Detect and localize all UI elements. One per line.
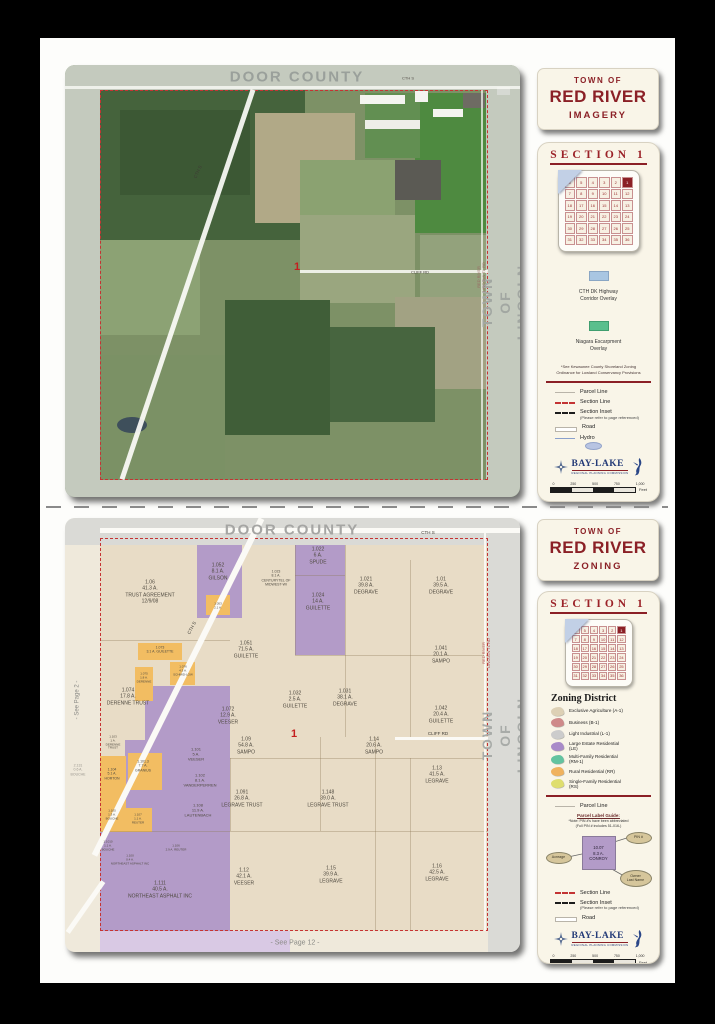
section-cell: 25 [622, 223, 633, 234]
section-cell: 21 [590, 653, 598, 661]
map-label: 1.103 1 A. DERENNE TRUST [106, 736, 121, 751]
line-swatch [555, 806, 575, 807]
logo-name: BAY-LAKE [572, 459, 629, 469]
section-cell: 15 [599, 644, 607, 652]
section-cell: 34 [599, 672, 607, 680]
section-cell: 28 [590, 663, 598, 671]
section-cell: 29 [576, 223, 587, 234]
section-cell: 32 [576, 235, 587, 246]
imagery-labels: DOOR COUNTYCTH STOWN OF LINCOLNRED RIVER… [65, 65, 520, 497]
section-cell: 31 [565, 235, 576, 246]
map-label: 1.14 20.6 A. SAMPO [365, 737, 383, 756]
section-cell: 27 [599, 663, 607, 671]
section-cell: 33 [590, 672, 598, 680]
map-label: DOOR COUNTY [230, 69, 365, 88]
compass-icon [554, 932, 568, 946]
section-cell: 2 [608, 626, 616, 634]
overlay-swatch [589, 321, 609, 331]
title-type: ZONING [538, 561, 658, 572]
section-cell: 13 [617, 644, 625, 652]
section-cell: 33 [588, 235, 599, 246]
section-cell: 22 [599, 212, 610, 223]
line-swatch [555, 902, 575, 904]
section-cell: 31 [572, 672, 580, 680]
section-cell: 3 [599, 626, 607, 634]
section-cell: 19 [572, 653, 580, 661]
line-label: Parcel Line [580, 389, 608, 395]
scale-unit: Feet [639, 487, 647, 492]
map-label: TOWN OF LINCOLN [479, 697, 520, 773]
section-cell: 19 [565, 212, 576, 223]
section-cell: 18 [572, 644, 580, 652]
baylake-logo: BAY-LAKE REGIONAL PLANNING COMMISSION [543, 930, 654, 948]
section-cell: 26 [608, 663, 616, 671]
scale-bar: 02505007501,000 Feet [543, 954, 654, 964]
section-inset-map: 6543217891011121817161514131920212223243… [558, 170, 640, 252]
map-label: 1.021 39.8 A. DEGRAVE [354, 577, 378, 596]
guide-parcel-box: 10.07 8.3 A. CONROY [582, 836, 616, 870]
overlay-label: CTH DK Highway Corridor Overlay [543, 289, 654, 302]
guide-title: Parcel Label Guide: [543, 813, 654, 818]
guide-diagram: 10.07 8.3 A. CONROY PIN # Acreage Owner … [544, 830, 654, 886]
section-cell: 24 [617, 653, 625, 661]
zone-swatch [551, 755, 564, 764]
scale-bar-segments [550, 959, 636, 964]
line-legend-item: Section Line [555, 890, 654, 897]
section-cell: 14 [608, 644, 616, 652]
section-cell: 35 [611, 235, 622, 246]
scale-tick: 0 [553, 482, 555, 486]
line-label: Parcel Line [580, 803, 608, 809]
line-swatch [555, 392, 575, 393]
map-label: 1.073 3.1 A. GUILETTE [146, 646, 173, 655]
map-label: 1.101 5 A. VEESER [188, 747, 204, 762]
map-label: 1.053 2.1 A. [214, 602, 222, 610]
section-cell: 34 [599, 235, 610, 246]
section-cell: 30 [565, 223, 576, 234]
zoning-district-header: Zoning District [551, 693, 654, 704]
scale-tick: 0 [553, 954, 555, 958]
section-cell: 10 [599, 635, 607, 643]
map-label: CLIFF RD [411, 270, 429, 275]
section-cell: 30 [572, 663, 580, 671]
map-label: 1.111 40.5 A. NORTHEAST ASPHALT INC [128, 881, 192, 900]
map-label: 1.022 6 A. SPUDE [309, 547, 326, 566]
section-inset-map: 6543217891011121817161514131920212223243… [565, 619, 633, 687]
map-label: 1 [294, 261, 300, 275]
title-name: RED RIVER [538, 538, 658, 558]
map-label: 1.108 11.9 A. LAUTENBACH [185, 803, 212, 818]
compass-icon [554, 460, 568, 474]
logo-subtitle: REGIONAL PLANNING COMMISSION [572, 942, 629, 948]
zoning-legend-card: SECTION 1 654321789101112181716151413192… [537, 591, 660, 964]
map-label: 1.107 1.1 A. REUTER [132, 813, 144, 824]
map-label: 1.106 2.9 A. REUTER [166, 844, 187, 852]
line-legend-item: Road [555, 915, 654, 923]
section-cell: 17 [581, 644, 589, 652]
page-curl-icon [565, 619, 589, 643]
zone-swatch [551, 779, 564, 788]
map-label: 1.09 54.8 A. SAMPO [237, 737, 255, 756]
section-cell: 2 [611, 177, 622, 188]
map-label: CTH S [193, 165, 204, 180]
map-label: 1.072 12.9 A. VEESER [218, 707, 238, 726]
zoning-map: DOOR COUNTYCTH STOWN OF LINCOLNRED RIVER… [65, 518, 520, 952]
section-cell: 20 [581, 653, 589, 661]
map-label: 1.104 5.1 A. HORTON [104, 767, 119, 780]
section-cell: 36 [622, 235, 633, 246]
line-legend-item: Section Line [555, 399, 654, 406]
map-label: RED RIVER LINCOLN TL RD [481, 636, 491, 670]
guide-pin-callout: PIN # [626, 832, 652, 844]
zone-label: Multi-Family Residential (RM-1) [569, 754, 618, 765]
section-cell: 4 [590, 626, 598, 634]
zone-label: Single-Family Residential (RS) [569, 779, 621, 790]
line-legend-item: Hydro [555, 435, 654, 450]
legend-divider [546, 795, 650, 797]
section-cell: 11 [608, 635, 616, 643]
section-cell: 23 [611, 212, 622, 223]
section-cell: 15 [599, 200, 610, 211]
scale-tick: 750 [614, 954, 620, 958]
scale-bar-segments [550, 487, 636, 493]
line-swatch [555, 427, 577, 432]
heron-icon [632, 930, 643, 948]
section-cell: 17 [576, 200, 587, 211]
line-legend-item: Section Inset(Please refer to page refer… [555, 900, 654, 911]
line-swatch [555, 402, 575, 404]
imagery-title-card: TOWN OF RED RIVER IMAGERY [537, 68, 659, 130]
map-label: 1.052 8.1 A. GILSON [209, 563, 228, 582]
section-underline [550, 163, 648, 165]
logo-name: BAY-LAKE [572, 931, 629, 941]
section-cell: 24 [622, 212, 633, 223]
section-cell: 32 [581, 672, 589, 680]
map-label: 1.15 39.9 A. LEGRAVE [319, 866, 342, 885]
map-label: 1.105 1.3 A. BOUCHE [106, 809, 119, 820]
zone-legend-item: Rural Residential (RR) [551, 767, 654, 776]
map-label: 1.1010 1.1 A. BOUCHE [102, 840, 115, 851]
map-label: 1.076 4.3 A. SCHMID-LOW [173, 665, 193, 676]
scale-tick: 500 [592, 954, 598, 958]
section-underline [550, 612, 648, 614]
guide-acreage-callout: Acreage [546, 852, 572, 864]
title-type: IMAGERY [538, 110, 658, 121]
line-sublabel: (Please refer to page referenced) [580, 906, 639, 911]
line-swatch [555, 892, 575, 894]
line-legend-item: Road [555, 424, 654, 432]
scale-tick: 250 [570, 482, 576, 486]
line-swatch [555, 438, 575, 439]
logo-subtitle: REGIONAL PLANNING COMMISSION [572, 470, 629, 476]
section-cell: 14 [611, 200, 622, 211]
map-label: 1 [291, 728, 297, 742]
zone-legend-item: Exclusive Agriculture (A-1) [551, 707, 654, 716]
section-cell: 35 [608, 672, 616, 680]
map-label: 1.101.3 7.7 A. GRANIUS [135, 759, 151, 772]
map-label: 1.024 14 A. GUILETTE [306, 593, 330, 612]
overlay-legend-item: Niagara Escarpment Overlay [543, 318, 654, 352]
section-cell: 16 [590, 644, 598, 652]
section-cell: 18 [565, 200, 576, 211]
map-label: 1.06 41.3 A. TRUST AGREEMENT 12/9/08 [125, 580, 174, 605]
zone-label: Exclusive Agriculture (A-1) [569, 708, 623, 713]
line-swatch [555, 917, 577, 922]
guide-owner-callout: Owner Last Name [620, 870, 652, 887]
section-cell: 10 [599, 189, 610, 200]
zone-label: Large Estate Residential (LE) [569, 741, 619, 752]
scale-tick: 1,000 [636, 954, 645, 958]
section-cell: 21 [588, 212, 599, 223]
line-label: Road [582, 424, 595, 430]
map-label: - See Page 12 - [270, 940, 319, 949]
section-cell: 9 [588, 189, 599, 200]
map-label: CTH S [421, 530, 435, 536]
zoning-title-card: TOWN OF RED RIVER ZONING [537, 519, 659, 581]
map-label: 1.100 0.4 A. NORTHEAST ASPHALT INC [111, 854, 149, 865]
line-sublabel: (Please refer to page referenced) [580, 416, 639, 421]
line-legend-item: Parcel Line [555, 389, 654, 396]
zone-legend-item: Light Industrial (L-1) [551, 730, 654, 739]
section-cell: 13 [622, 200, 633, 211]
section-cell: 11 [611, 189, 622, 200]
page-root: DOOR COUNTYCTH STOWN OF LINCOLNRED RIVER… [0, 0, 715, 1024]
section-cell: 4 [588, 177, 599, 188]
map-label: 1.041 20.1 A. SAMPO [432, 646, 450, 665]
title-town: TOWN OF [538, 76, 658, 85]
zone-swatch [551, 730, 564, 739]
section-cell: 16 [588, 200, 599, 211]
section-cell: 12 [622, 189, 633, 200]
map-label: RED RIVER LINCOLN TL RD [476, 258, 486, 297]
zoning-labels: DOOR COUNTYCTH STOWN OF LINCOLNRED RIVER… [65, 518, 520, 952]
zone-legend-item: Single-Family Residential (RS) [551, 779, 654, 790]
parcel-label-guide: Parcel Label Guide: *Note: PIN #'s have … [543, 813, 654, 886]
section-cell: 1 [617, 626, 625, 634]
zone-label: Business (B-1) [569, 720, 599, 725]
map-label: 1.13 41.5 A. LEGRAVE [425, 766, 448, 785]
zone-legend-item: Multi-Family Residential (RM-1) [551, 754, 654, 765]
map-label: 1.042 20.4 A. GUILETTE [429, 706, 453, 725]
map-label: 1.032 2.5 A. GUILETTE [283, 691, 307, 710]
title-town: TOWN OF [538, 527, 658, 536]
section-cell: 1 [622, 177, 633, 188]
legend-divider [546, 381, 650, 383]
map-label: 1.074 17.8 A. DERENNE TRUST [107, 688, 149, 707]
imagery-legend-card: SECTION 1 654321789101112181716151413192… [537, 142, 660, 502]
section-cell: 22 [599, 653, 607, 661]
scale-bar: 02505007501,000 Feet [543, 482, 654, 493]
guide-note: *Note: PIN #'s have been abbreviated (Fu… [543, 819, 654, 828]
zone-swatch [551, 718, 564, 727]
imagery-map: DOOR COUNTYCTH STOWN OF LINCOLNRED RIVER… [65, 65, 520, 497]
section-cell: 28 [588, 223, 599, 234]
section-cell: 20 [576, 212, 587, 223]
section-cell: 36 [617, 672, 625, 680]
zone-legend-item: Large Estate Residential (LE) [551, 741, 654, 752]
page-curl-icon [558, 170, 582, 194]
map-label: 1.031 38.1 A. DEGRAVE [333, 689, 357, 708]
shoreland-note: *See Kewaunee County Shoreland Zoning Or… [543, 364, 654, 375]
section-cell: 26 [611, 223, 622, 234]
heron-icon [632, 458, 643, 476]
scale-tick: 250 [570, 954, 576, 958]
map-label: 1.023 8.1 A. CENTURYTEL OF MIDWEST-WI [262, 569, 291, 587]
zone-legend-item: Business (B-1) [551, 718, 654, 727]
map-label: CTH S [402, 76, 414, 81]
section-cell: 23 [608, 653, 616, 661]
scale-unit: Feet [639, 960, 647, 964]
map-label: 1.01 39.5 A. DEGRAVE [429, 577, 453, 596]
panel-divider [46, 506, 668, 508]
map-label: 2.131 0.6 A. BOUCHE [71, 763, 86, 776]
line-legend-item: Parcel Line [555, 803, 654, 810]
map-label: - See Page 2 - [74, 681, 82, 720]
section-cell: 12 [617, 635, 625, 643]
section-header: SECTION 1 [543, 598, 654, 610]
zone-label: Rural Residential (RR) [569, 769, 615, 774]
map-label: DOOR COUNTY [225, 522, 360, 541]
title-name: RED RIVER [538, 87, 658, 107]
section-header: SECTION 1 [543, 149, 654, 161]
scale-tick: 1,000 [636, 482, 645, 486]
baylake-logo: BAY-LAKE REGIONAL PLANNING COMMISSION [543, 458, 654, 476]
section-cell: 27 [599, 223, 610, 234]
section-cell: 9 [590, 635, 598, 643]
map-label: 1.102 8.1 A. VANDERPERREN [183, 773, 216, 788]
line-swatch [555, 412, 575, 414]
map-label: 1.075 1.8 A. DERENNE [137, 672, 152, 683]
map-label: 1.051 71.5 A. GUILETTE [234, 641, 258, 660]
scale-tick: 750 [614, 482, 620, 486]
line-label: Section Line [580, 399, 610, 405]
overlay-legend-item: CTH DK Highway Corridor Overlay [543, 268, 654, 302]
overlay-swatch [589, 271, 609, 281]
line-legend-item: Section Inset(Please refer to page refer… [555, 409, 654, 420]
overlay-label: Niagara Escarpment Overlay [543, 339, 654, 352]
map-label: 1.091 26.8 A. LEGRAVE TRUST [221, 790, 262, 809]
zone-label: Light Industrial (L-1) [569, 731, 610, 736]
section-cell: 25 [617, 663, 625, 671]
line-label: Hydro [580, 435, 595, 441]
map-label: CTH S [186, 621, 197, 636]
section-cell: 3 [599, 177, 610, 188]
scale-tick: 500 [592, 482, 598, 486]
map-label: 1.16 42.5 A. LEGRAVE [425, 864, 448, 883]
line-label: Section Line [580, 890, 610, 896]
zone-swatch [551, 707, 564, 716]
section-cell: 29 [581, 663, 589, 671]
line-label: Road [582, 915, 595, 921]
zone-swatch [551, 742, 564, 751]
map-label: CLIFF RD [428, 731, 448, 737]
zone-swatch [551, 767, 564, 776]
map-label: 1.148 39.0 A. LEGRAVE TRUST [307, 790, 348, 809]
map-label: 1.12 42.1 A. VEESER [234, 868, 254, 887]
